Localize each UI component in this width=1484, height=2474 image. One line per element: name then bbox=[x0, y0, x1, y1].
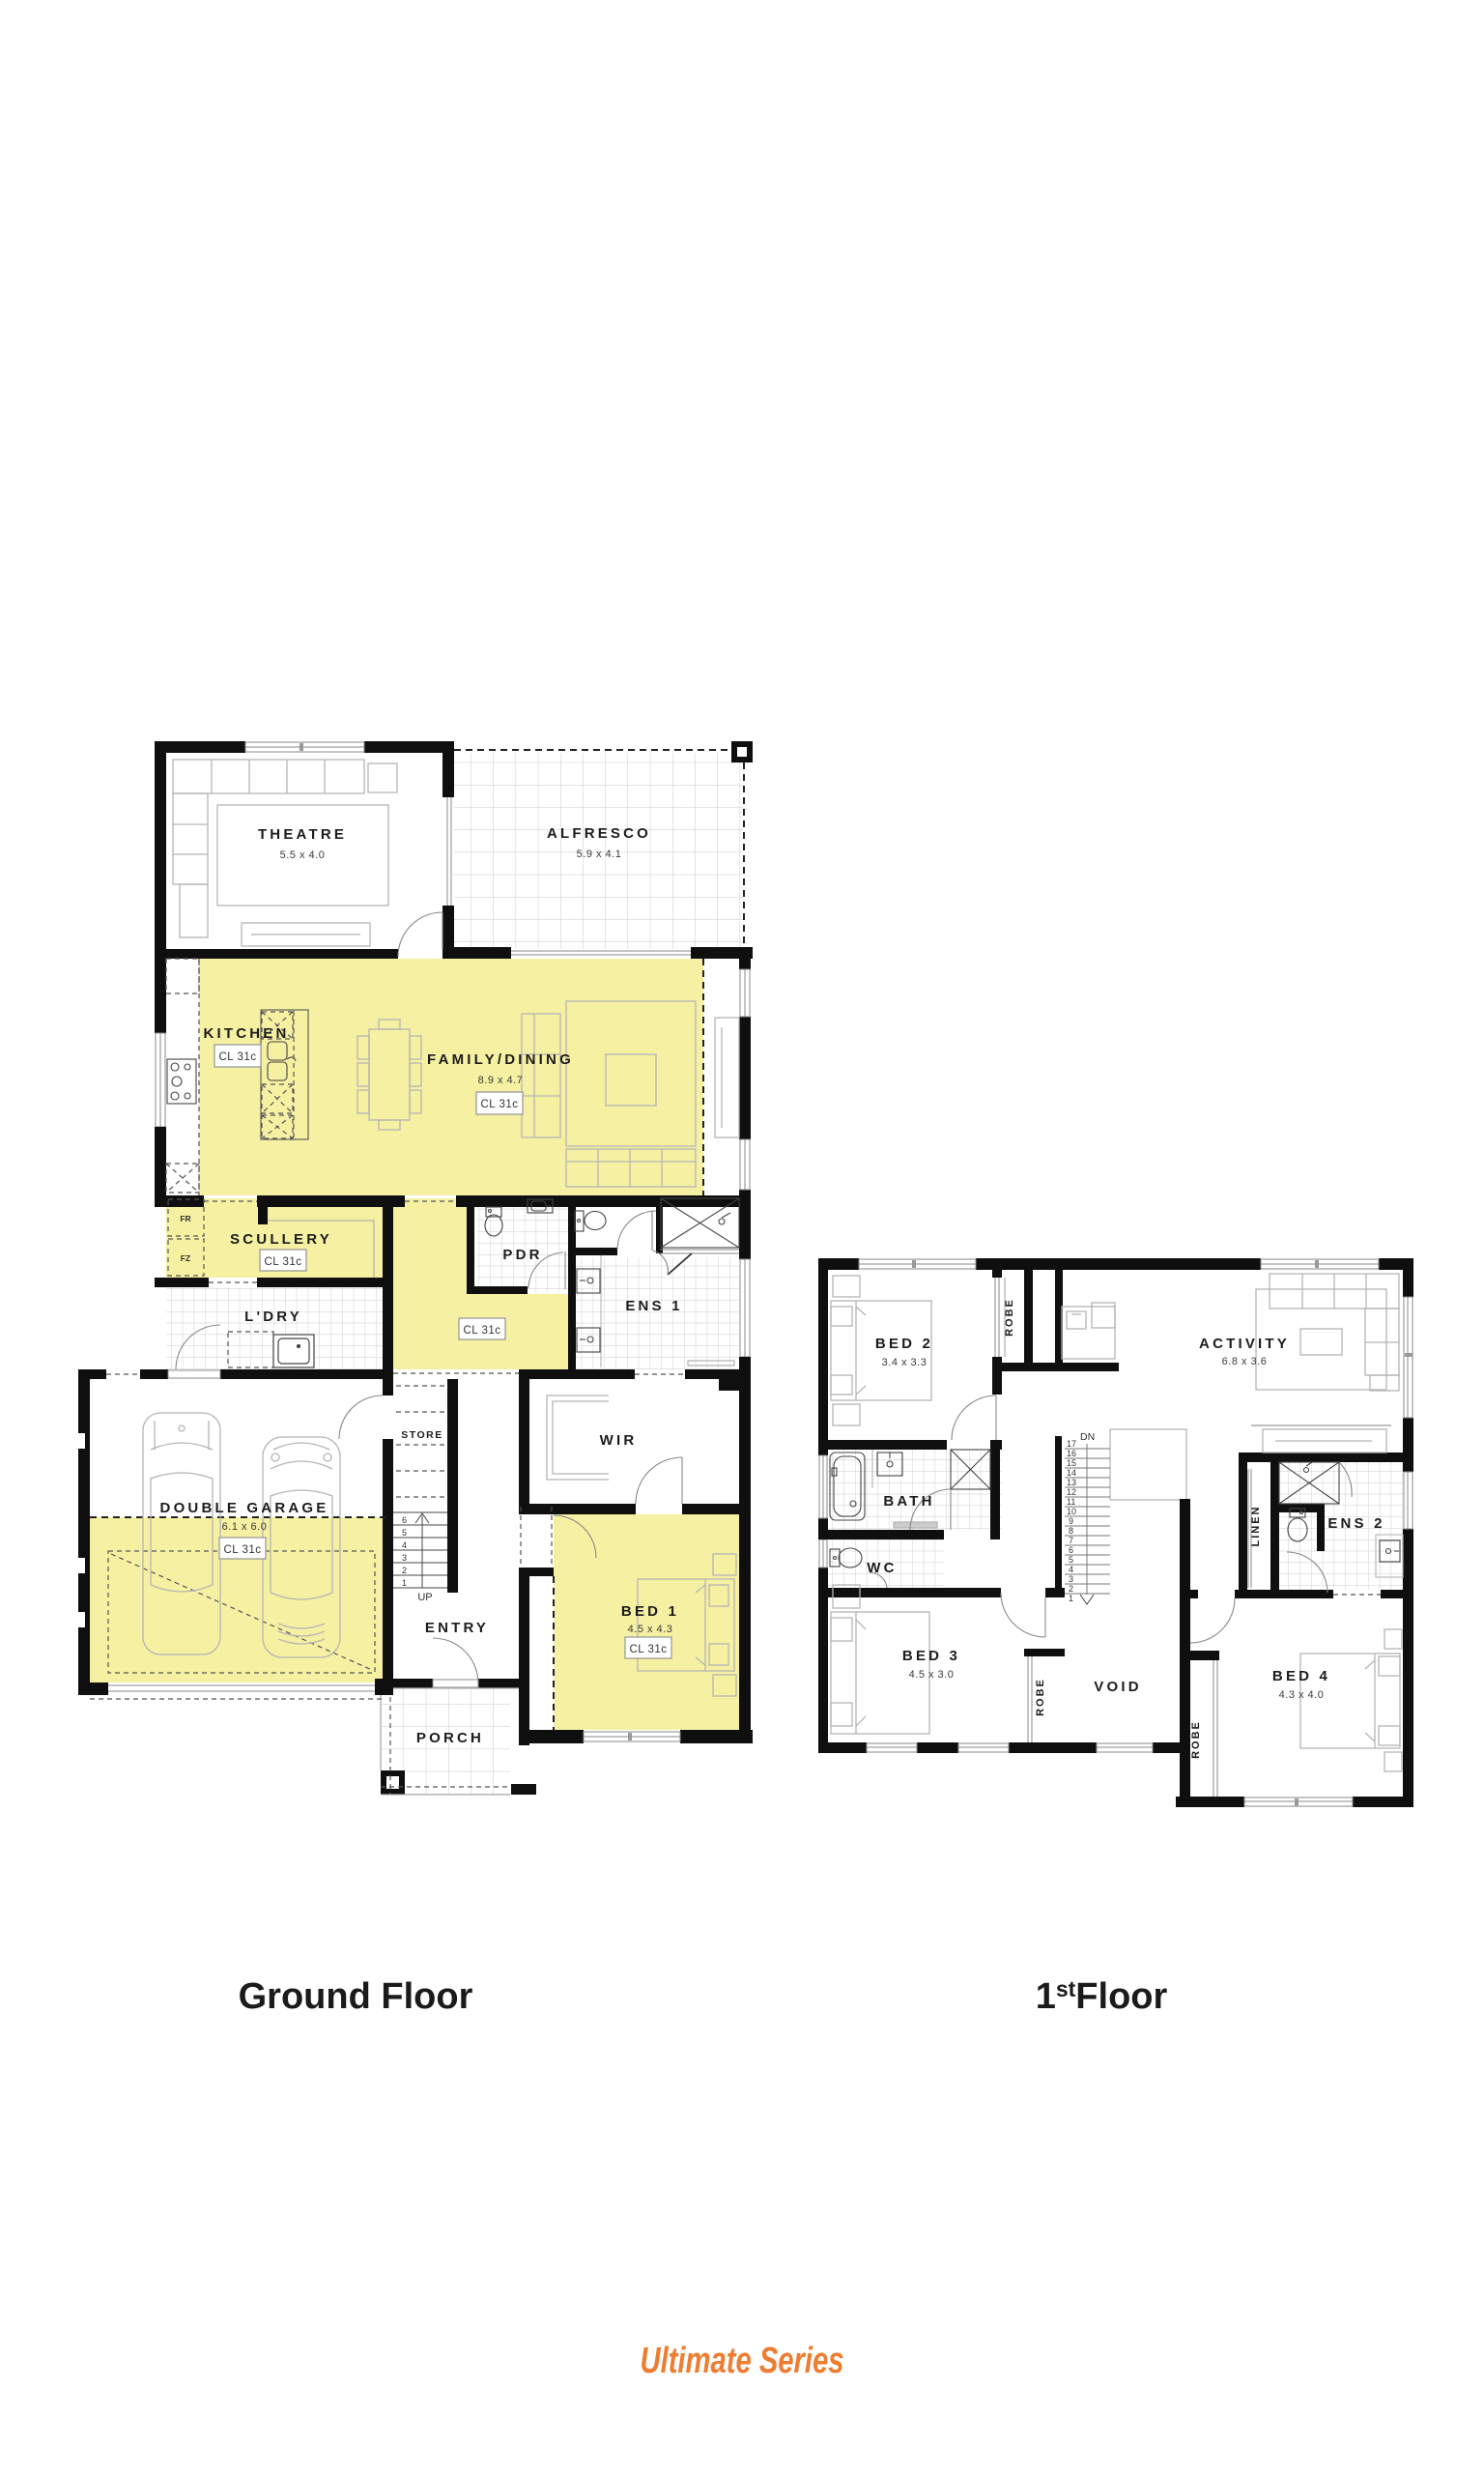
svg-text:WC: WC bbox=[867, 1560, 897, 1576]
svg-text:6.1 x 6.0: 6.1 x 6.0 bbox=[222, 1521, 268, 1533]
svg-text:8: 8 bbox=[1069, 1526, 1073, 1536]
svg-text:BATH: BATH bbox=[883, 1493, 934, 1510]
svg-text:ENTRY: ENTRY bbox=[425, 1620, 489, 1636]
svg-text:STORE: STORE bbox=[401, 1429, 442, 1441]
svg-text:LINEN: LINEN bbox=[1250, 1506, 1262, 1547]
svg-text:L'DRY: L'DRY bbox=[244, 1309, 302, 1325]
svg-text:17: 17 bbox=[1067, 1439, 1076, 1449]
svg-text:PORCH: PORCH bbox=[416, 1730, 484, 1746]
svg-text:BED 2: BED 2 bbox=[875, 1336, 933, 1352]
svg-text:ROBE: ROBE bbox=[1190, 1720, 1202, 1759]
svg-text:CL 31c: CL 31c bbox=[218, 1051, 256, 1063]
svg-text:SCULLERY: SCULLERY bbox=[230, 1231, 332, 1248]
svg-text:CL 31c: CL 31c bbox=[629, 1644, 667, 1655]
svg-text:1: 1 bbox=[1069, 1594, 1073, 1603]
svg-text:4: 4 bbox=[1069, 1565, 1073, 1574]
svg-text:BED 1: BED 1 bbox=[621, 1603, 679, 1620]
svg-text:VOID: VOID bbox=[1094, 1679, 1141, 1695]
svg-text:4: 4 bbox=[402, 1540, 407, 1550]
svg-text:12: 12 bbox=[1067, 1487, 1076, 1497]
svg-text:4.3 x 4.0: 4.3 x 4.0 bbox=[1279, 1689, 1325, 1701]
svg-text:5.5 x 4.0: 5.5 x 4.0 bbox=[280, 849, 326, 861]
svg-text:6.8 x 3.6: 6.8 x 3.6 bbox=[1222, 1356, 1268, 1367]
svg-text:6: 6 bbox=[1069, 1545, 1073, 1555]
svg-text:CL 31c: CL 31c bbox=[463, 1325, 500, 1337]
svg-text:9: 9 bbox=[1069, 1516, 1073, 1526]
svg-text:WIR: WIR bbox=[600, 1432, 638, 1449]
svg-text:CL 31c: CL 31c bbox=[264, 1256, 301, 1268]
svg-text:3: 3 bbox=[402, 1553, 407, 1563]
svg-text:1stFloor: 1stFloor bbox=[1036, 1976, 1168, 2017]
svg-text:3: 3 bbox=[1069, 1574, 1073, 1584]
svg-text:4.5 x 4.3: 4.5 x 4.3 bbox=[628, 1624, 673, 1635]
svg-text:8.9 x 4.7: 8.9 x 4.7 bbox=[478, 1075, 524, 1086]
svg-text:KITCHEN: KITCHEN bbox=[203, 1025, 289, 1042]
svg-text:ROBE: ROBE bbox=[1004, 1298, 1015, 1337]
svg-text:13: 13 bbox=[1067, 1478, 1076, 1487]
svg-text:16: 16 bbox=[1067, 1449, 1076, 1458]
svg-text:10: 10 bbox=[1067, 1507, 1076, 1516]
svg-text:Ultimate Series: Ultimate Series bbox=[641, 2341, 844, 2381]
svg-text:2: 2 bbox=[1069, 1584, 1073, 1594]
svg-text:DOUBLE GARAGE: DOUBLE GARAGE bbox=[160, 1500, 329, 1516]
svg-text:14: 14 bbox=[1067, 1468, 1076, 1478]
svg-text:FZ: FZ bbox=[181, 1253, 190, 1263]
svg-text:Ground Floor: Ground Floor bbox=[239, 1976, 473, 2017]
svg-text:FAMILY/DINING: FAMILY/DINING bbox=[427, 1051, 574, 1068]
svg-text:ACTIVITY: ACTIVITY bbox=[1199, 1336, 1290, 1352]
svg-text:1: 1 bbox=[402, 1578, 407, 1588]
svg-text:BED 4: BED 4 bbox=[1272, 1668, 1330, 1684]
svg-text:5: 5 bbox=[402, 1528, 407, 1538]
svg-text:ENS 1: ENS 1 bbox=[625, 1298, 682, 1314]
svg-text:11: 11 bbox=[1067, 1497, 1075, 1507]
svg-text:2: 2 bbox=[402, 1566, 407, 1575]
svg-text:7: 7 bbox=[1069, 1536, 1073, 1545]
svg-text:3.4 x 3.3: 3.4 x 3.3 bbox=[882, 1357, 927, 1368]
svg-text:DN: DN bbox=[1080, 1431, 1095, 1443]
svg-text:BED 3: BED 3 bbox=[902, 1648, 960, 1664]
svg-text:CL 31c: CL 31c bbox=[223, 1544, 261, 1556]
svg-text:ROBE: ROBE bbox=[1035, 1678, 1046, 1716]
svg-text:ALFRESCO: ALFRESCO bbox=[547, 825, 651, 842]
svg-text:5.9 x 4.1: 5.9 x 4.1 bbox=[577, 849, 622, 860]
svg-text:15: 15 bbox=[1067, 1458, 1076, 1468]
svg-text:4.5 x 3.0: 4.5 x 3.0 bbox=[909, 1669, 955, 1681]
svg-text:PDR: PDR bbox=[502, 1247, 542, 1263]
svg-text:UP: UP bbox=[417, 1592, 432, 1603]
svg-text:FR: FR bbox=[180, 1214, 190, 1223]
svg-text:CL 31c: CL 31c bbox=[480, 1099, 518, 1110]
svg-text:6: 6 bbox=[402, 1515, 407, 1525]
svg-text:ENS 2: ENS 2 bbox=[1327, 1515, 1384, 1532]
svg-text:5: 5 bbox=[1069, 1555, 1073, 1565]
svg-text:THEATRE: THEATRE bbox=[258, 826, 347, 843]
